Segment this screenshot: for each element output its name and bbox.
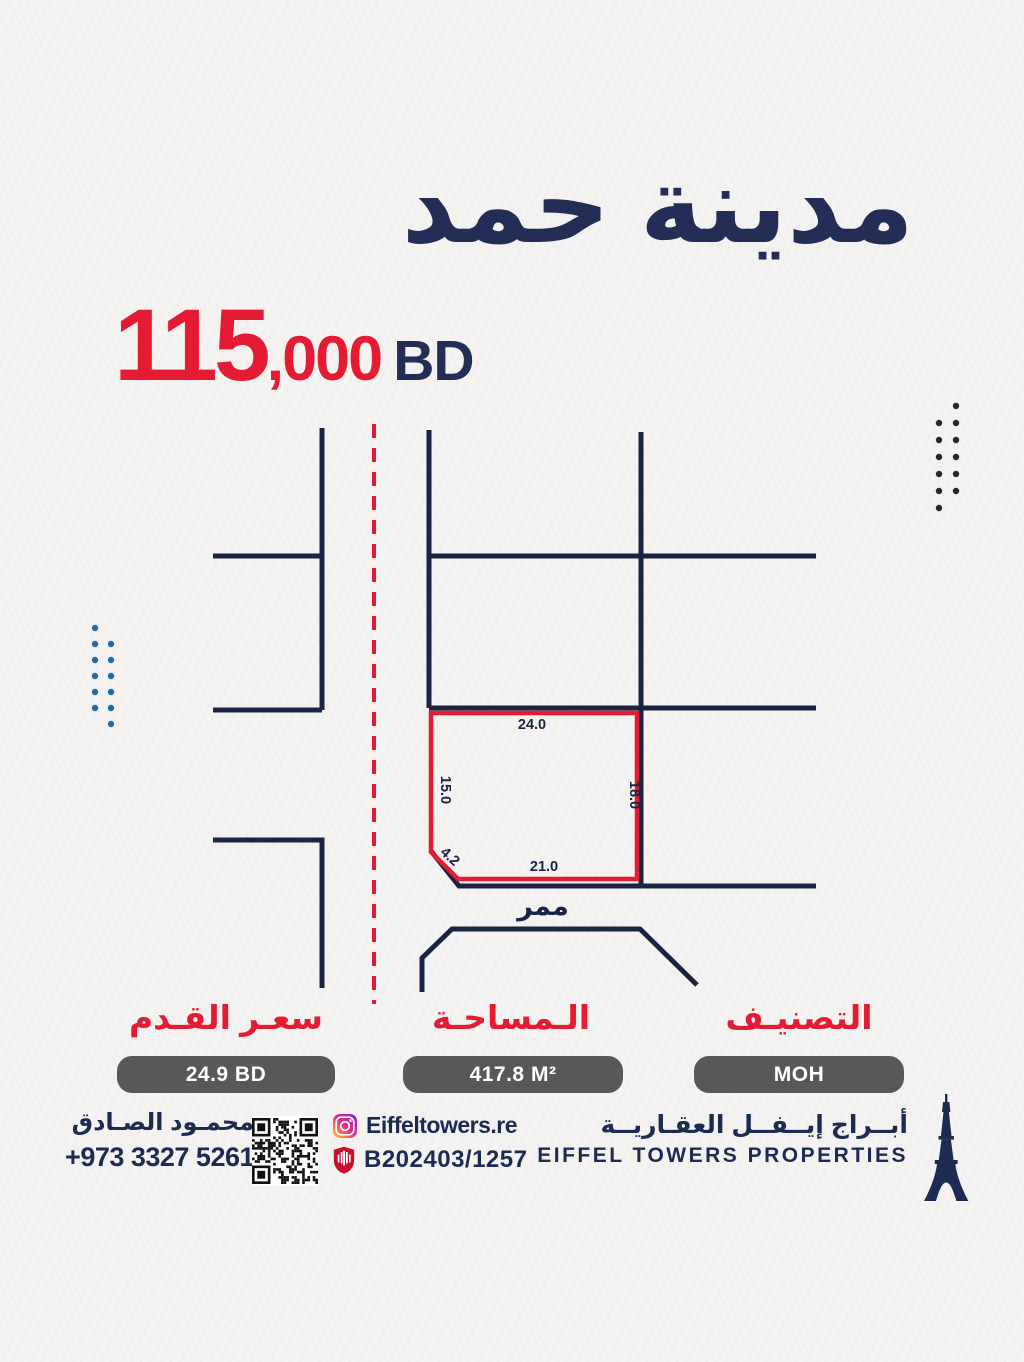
instagram-icon bbox=[333, 1114, 357, 1138]
price-per-foot-label: سعـر القـدم bbox=[95, 998, 357, 1037]
dimension-label-left: 15.0 bbox=[437, 776, 453, 804]
price: 115 ,000 BD bbox=[114, 294, 474, 396]
decor-dots-dark bbox=[936, 403, 959, 511]
street-lines-passage-block bbox=[422, 929, 697, 992]
company-block: أبــراج إيــفــل العقـاريــة EIFFEL TOWE… bbox=[537, 1110, 908, 1168]
agent-phone: +973 3327 5261 bbox=[65, 1142, 254, 1173]
eiffel-tower-icon bbox=[922, 1094, 970, 1206]
agent-contact: محمـود الصـادق +973 3327 5261 bbox=[44, 1108, 254, 1173]
price-currency: BD bbox=[393, 333, 473, 390]
street-lines-west bbox=[213, 428, 322, 988]
price-thousands: ,000 bbox=[267, 328, 382, 391]
real-estate-flyer: 24.0 15.0 18.0 21.0 4.2 ممر مدينة حمد 11… bbox=[0, 0, 1024, 1362]
price-per-foot-value: 24.9 BD bbox=[117, 1056, 335, 1093]
classification-label: التصنيـف bbox=[668, 998, 930, 1037]
social-block: Eiffeltowers.re B202403/1257 bbox=[333, 1112, 527, 1174]
license-row: B202403/1257 bbox=[333, 1146, 527, 1174]
license-number: B202403/1257 bbox=[364, 1146, 527, 1174]
page-title: مدينة حمد bbox=[402, 148, 914, 265]
passage-label: ممر bbox=[515, 891, 569, 922]
company-name-arabic: أبــراج إيــفــل العقـاريــة bbox=[600, 1110, 908, 1140]
area-label: الـمساحـة bbox=[380, 998, 642, 1037]
agent-name: محمـود الصـادق bbox=[72, 1108, 254, 1137]
license-shield-icon bbox=[333, 1146, 355, 1174]
area-value: 417.8 M² bbox=[403, 1056, 623, 1093]
dimension-label-bottom: 21.0 bbox=[530, 859, 558, 875]
classification-value: MOH bbox=[694, 1056, 904, 1093]
street-lines-east bbox=[429, 430, 816, 886]
company-name-english: EIFFEL TOWERS PROPERTIES bbox=[537, 1144, 908, 1168]
dimension-label-right: 18.0 bbox=[626, 781, 642, 809]
qr-code bbox=[252, 1116, 318, 1186]
plot-outline bbox=[431, 713, 637, 879]
price-amount: 115 bbox=[114, 294, 267, 396]
decor-dots-blue bbox=[92, 625, 114, 727]
dimension-label-top: 24.0 bbox=[518, 717, 546, 733]
instagram-handle: Eiffeltowers.re bbox=[366, 1112, 517, 1139]
instagram-row: Eiffeltowers.re bbox=[333, 1112, 527, 1139]
